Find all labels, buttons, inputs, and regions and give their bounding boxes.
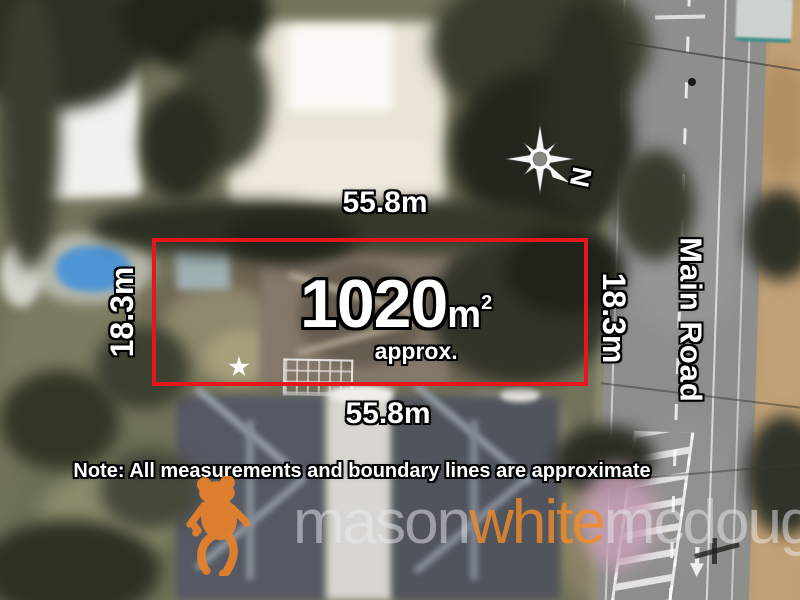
- watermark-white: white: [469, 488, 604, 557]
- tree: [0, 370, 120, 470]
- right-depth-label: 18.3m: [598, 273, 630, 364]
- note-label: Note: All measurements and boundary line…: [73, 461, 650, 481]
- bus-shelter-roof: [735, 0, 793, 43]
- road-marking: [655, 15, 705, 20]
- property-aerial-map: 55.8m 55.8m 18.3m 18.3m Main Road 1020m2…: [0, 0, 800, 600]
- area-qualifier: approx.: [340, 340, 492, 363]
- area-label: 1020m2 approx.: [300, 270, 492, 363]
- tree: [0, 0, 60, 270]
- area-unit: m2: [447, 294, 492, 336]
- power-pole: [688, 78, 696, 86]
- driveway: [500, 388, 540, 402]
- watermark-mcdougall: mcdougall: [604, 488, 800, 557]
- watermark-mason: mason: [293, 488, 469, 557]
- neighbour-building-roof: [288, 26, 393, 111]
- frog-logo-icon: [186, 476, 252, 576]
- left-depth-label: 18.3m: [106, 267, 138, 358]
- watermark: masonwhitemcdougall: [293, 492, 800, 554]
- road-name-label: Main Road: [676, 237, 707, 403]
- area-value: 1020: [300, 266, 447, 342]
- top-width-label: 55.8m: [342, 188, 427, 218]
- tree: [140, 90, 220, 200]
- bottom-width-label: 55.8m: [345, 399, 430, 429]
